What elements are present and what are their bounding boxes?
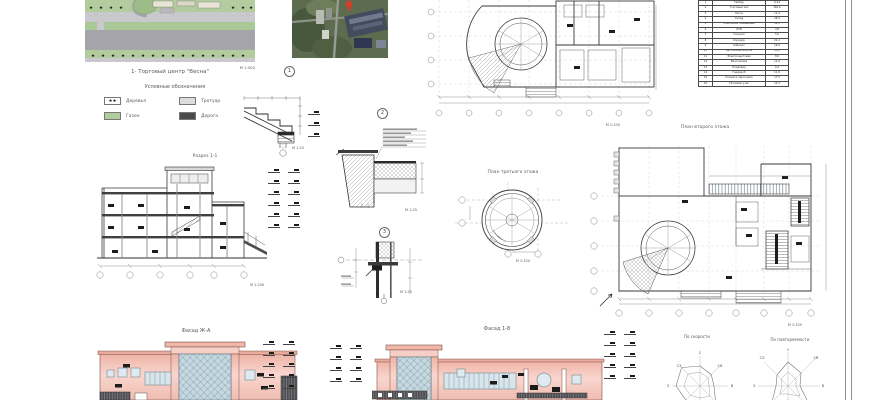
stair-cores [766,198,809,269]
elevation-mark [268,190,280,195]
svg-text:★: ★ [191,53,195,59]
elevation-mark [624,352,636,357]
elevation-mark [350,355,362,360]
elevation-mark [263,351,275,356]
elevation-mark [263,340,275,345]
section-title: Разрез 1-1 [165,154,245,159]
sheet-border-outer [845,0,846,400]
svg-text:В: В [822,384,825,388]
table-cell: 10.3 [766,81,789,86]
wind-rose-frequency: С СВ В ЮВ Ю ЮЗ З СЗ [750,344,830,400]
detail-3-junction [336,238,428,304]
svg-text:СЗ: СЗ [760,356,766,360]
table-row: 16Тепловой узел10.3 [699,81,789,86]
road-swatch [179,112,196,120]
svg-text:В: В [731,384,734,388]
elevation-mark [268,212,280,217]
detail-1-scale: М 1:25 [292,146,304,150]
detail-2-cornice [336,119,432,209]
elevation-mark [604,330,616,335]
elevation-mark [604,363,616,368]
detail-2-badge: 2 [377,108,388,119]
elevation-mark [624,363,636,368]
room-table-body: 1Тамбур6.242Торговый зал184.63Касса12.44… [699,1,789,87]
elevation-mark [263,384,275,389]
site-plan-caption: 1- Торговый центр "Весна" [85,69,255,75]
svg-text:З: З [667,384,670,388]
second-floor-plan [586,136,842,322]
elevation-mark [624,341,636,346]
elevation-mark [283,351,295,356]
elevation-mark [288,201,300,206]
section-drawing [92,162,272,286]
svg-text:★: ★ [89,5,93,11]
site-plan-drawing: ★★★★ ★★★ ★★★★ ★★★★ ★★★★ ★★★★ [85,0,255,62]
door-marks [567,18,640,69]
table-cell: Тепловой узел [713,81,766,86]
legend-label: Газон [126,114,140,119]
svg-text:★: ★ [231,53,235,59]
svg-text:★: ★ [101,53,105,59]
elevation-mark [604,352,616,357]
direction-labels: С СВ В ЮВ Ю ЮЗ З СЗ [667,351,734,400]
first-floor-scale: М 1:100 [580,123,620,127]
legend-label: Дорога [201,114,218,119]
table-cell: 16 [699,81,713,86]
svg-text:★: ★ [221,53,225,59]
elevation-mark [288,168,300,173]
svg-text:СВ: СВ [814,356,820,360]
svg-text:★: ★ [99,5,103,11]
svg-text:★: ★ [241,53,245,59]
wind-rose-speed: С СВ В ЮВ Ю ЮЗ З СЗ [660,342,740,400]
elevation-mark [350,377,362,382]
svg-text:★: ★ [111,53,115,59]
drawing-sheet: ★★★★ ★★★ ★★★★ ★★★★ ★★★★ ★★★★ М 1:500 1- … [0,0,870,400]
facade-18-drawing [372,343,610,400]
elevation-mark [268,201,280,206]
elevation-mark [288,212,300,217]
elevation-mark [268,179,280,184]
elevation-mark [283,373,295,378]
elevation-mark [624,330,636,335]
elevation-mark [350,366,362,371]
facade-zha-title: Фасад Ж-А [146,328,246,334]
detail-3-scale: М 1:25 [400,290,412,294]
elevation-mark [330,366,342,371]
elevation-mark [268,223,280,228]
facade-18-levels [604,330,639,379]
elevation-mark [283,340,295,345]
wind-rose-freq-title: По повторяемости [748,337,832,342]
elevation-mark [604,374,616,379]
svg-text:С: С [787,348,790,352]
svg-text:★: ★ [141,53,145,59]
elevation-mark [283,362,295,367]
third-floor-title: План третьего этажа [452,170,574,175]
svg-text:★: ★ [151,53,155,59]
svg-text:★: ★ [91,53,95,59]
section-scale: М 1:200 [250,283,264,287]
svg-text:СЗ: СЗ [677,364,683,368]
third-floor-scale: М 1:100 [490,259,530,263]
elevation-mark [624,374,636,379]
svg-text:★: ★ [231,5,235,11]
axis-bubbles [97,272,247,278]
lawn-swatch [104,112,121,120]
facade-zha-levels-1 [263,340,298,389]
second-floor-title: План второго этажа [640,125,770,130]
svg-text:★: ★ [109,5,113,11]
svg-text:★: ★ [171,53,175,59]
second-floor-scale: М 1:100 [762,323,802,327]
legend-label: Деревья [126,99,146,104]
direction-labels: С СВ В ЮВ Ю ЮЗ З СЗ [753,348,825,400]
svg-text:★: ★ [211,53,215,59]
first-floor-plan [424,0,660,122]
elevation-mark [330,377,342,382]
sheet-border-inner [851,0,852,400]
elevation-mark [330,344,342,349]
elevation-mark [308,121,320,126]
svg-text:С: С [699,351,702,355]
elevation-mark [288,179,300,184]
elevation-mark [308,110,320,115]
detail-1-levels [308,110,320,137]
elevation-mark [308,132,320,137]
elevation-mark [288,190,300,195]
facade-zha-levels-2 [330,344,365,382]
sidewalk-swatch [179,97,196,105]
svg-text:★: ★ [161,53,165,59]
detail-1-badge: 1 [284,66,295,77]
elevation-mark [263,362,275,367]
svg-text:З: З [753,384,756,388]
legend-item-trees: ★★ Деревья [104,97,179,105]
detail-2-scale: М 1:25 [405,208,417,212]
facade-18-title: Фасад 1-8 [447,326,547,332]
room-schedule-table: 1Тамбур6.242Торговый зал184.63Касса12.44… [698,0,789,87]
satellite-photo [292,0,388,58]
axis-bubbles [428,9,652,116]
third-floor-plan [450,178,575,260]
elevation-mark [283,384,295,389]
svg-text:★: ★ [121,53,125,59]
svg-text:★: ★ [181,53,185,59]
trees-swatch: ★★ [104,97,121,105]
elevation-mark [263,373,275,378]
detail-3-badge: 3 [379,227,390,238]
legend-item-lawn: Газон [104,112,179,120]
elevation-mark [330,355,342,360]
elevation-mark [268,168,280,173]
wind-rose-speed-title: По скорости [657,334,737,339]
elevation-mark [604,341,616,346]
svg-text:★: ★ [201,53,205,59]
balcony-tabs [614,152,619,221]
elevation-mark [288,223,300,228]
svg-text:★: ★ [119,5,123,11]
svg-text:★: ★ [241,5,245,11]
section-levels [268,168,303,228]
svg-text:★: ★ [131,53,135,59]
svg-text:СВ: СВ [718,364,724,368]
glass-tower [165,342,245,400]
legend-label: Тротуар [201,99,220,104]
svg-text:★: ★ [249,5,253,11]
elevation-mark [350,344,362,349]
